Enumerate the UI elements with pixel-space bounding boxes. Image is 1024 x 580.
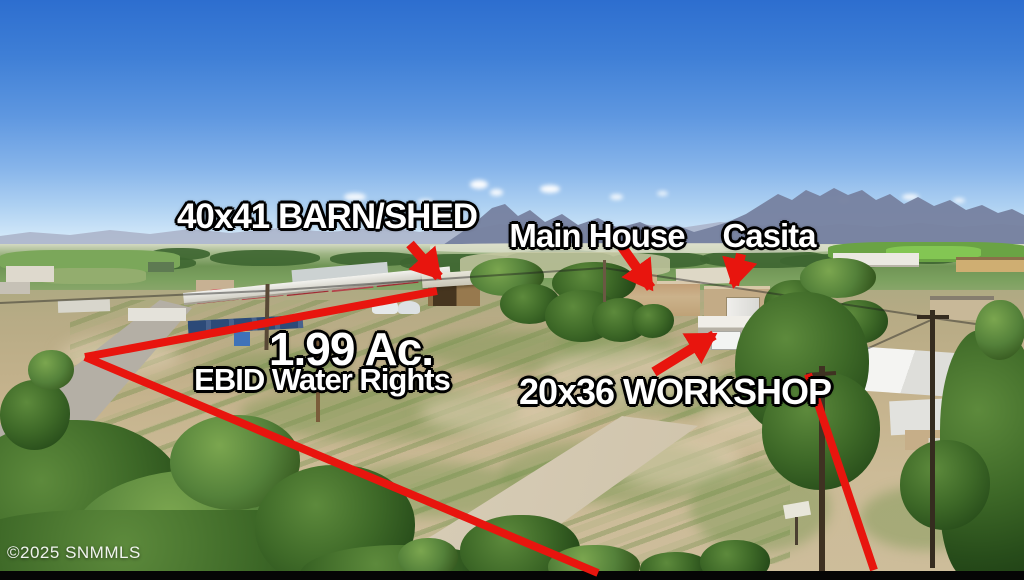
utility-pole <box>603 260 606 302</box>
white-farmhouse <box>6 266 54 282</box>
white-tank <box>398 301 420 314</box>
watermark: ©2025 SNMMLS <box>7 543 141 563</box>
utility-pole <box>930 310 935 568</box>
main-house-label: Main House <box>509 219 684 252</box>
workshop-label: 20x36 WORKSHOP <box>519 374 831 410</box>
farm-shed <box>0 282 30 294</box>
white-tank <box>372 298 398 314</box>
tree <box>975 300 1024 360</box>
tree <box>28 350 74 390</box>
treeline <box>210 250 320 266</box>
letterbox-bar <box>0 571 1024 580</box>
sign-post <box>795 517 798 545</box>
tree <box>900 440 990 530</box>
white-trailer <box>128 308 186 321</box>
barn-shed-building <box>428 284 480 306</box>
water-rights-label: EBID Water Rights <box>194 364 450 395</box>
white-rv <box>58 299 110 313</box>
aerial-property-photo: 40x41 BARN/SHED Main House Casita 1.99 A… <box>0 0 1024 580</box>
green-shed <box>148 262 174 272</box>
barn-label: 40x41 BARN/SHED <box>177 199 477 234</box>
tree <box>0 380 70 450</box>
pole-crossarm <box>917 315 949 319</box>
casita-label: Casita <box>722 219 815 252</box>
tree <box>632 304 674 338</box>
blue-bin <box>234 332 250 346</box>
tan-horizon-building <box>956 257 1024 272</box>
